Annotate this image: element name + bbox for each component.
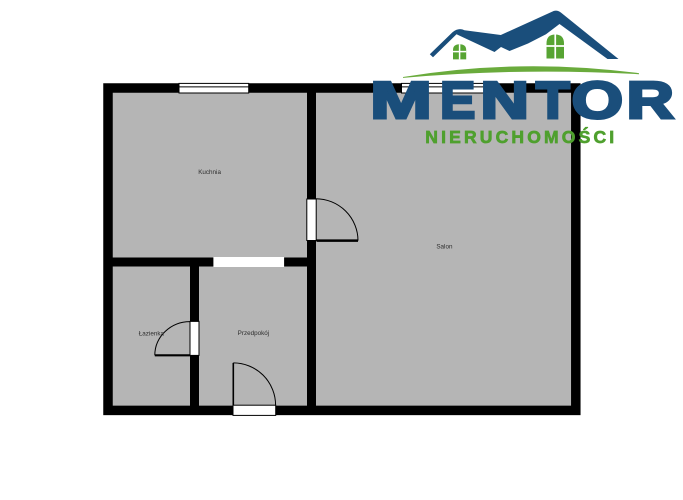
svg-text:E: E	[440, 72, 475, 130]
svg-text:Kuchnia: Kuchnia	[198, 169, 221, 176]
svg-text:R: R	[627, 72, 674, 130]
svg-text:Salon: Salon	[436, 243, 453, 250]
svg-text:O: O	[572, 72, 623, 130]
svg-text:Przedpokój: Przedpokój	[238, 330, 270, 337]
svg-text:N: N	[481, 72, 529, 130]
svg-text:M: M	[370, 72, 432, 130]
svg-text:T: T	[536, 72, 570, 130]
svg-text:Łazienka: Łazienka	[139, 331, 165, 338]
svg-text:NIERUCHOMOŚCI: NIERUCHOMOŚCI	[425, 126, 617, 147]
